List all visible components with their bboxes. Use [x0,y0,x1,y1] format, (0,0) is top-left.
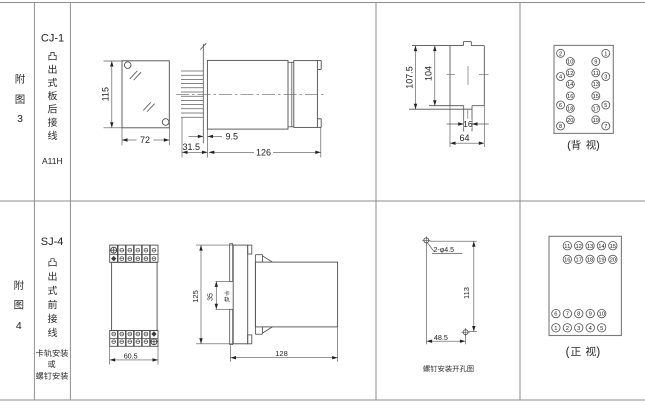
svg-text:2: 2 [559,51,562,57]
svg-text:7: 7 [604,124,607,130]
svg-text:SJ-4: SJ-4 [41,236,64,248]
svg-text:35: 35 [208,293,215,301]
svg-text:9: 9 [594,60,597,66]
svg-text:7: 7 [566,312,569,318]
svg-text:17: 17 [575,258,581,264]
svg-text:14: 14 [567,82,573,88]
svg-text:14: 14 [598,244,605,250]
svg-text:113: 113 [462,287,471,299]
svg-text:20: 20 [610,258,616,264]
svg-text:10: 10 [567,60,573,66]
svg-text:3: 3 [604,75,607,81]
svg-text:18: 18 [587,258,593,264]
svg-text:(: ( [566,346,570,358]
svg-text:): ) [596,140,600,152]
svg-text:12: 12 [575,244,581,250]
svg-text:12: 12 [567,71,573,77]
svg-text:A11H: A11H [42,156,63,166]
svg-text:17: 17 [593,106,599,112]
svg-text:16: 16 [463,119,473,129]
svg-text:126: 126 [256,147,271,157]
svg-text:8: 8 [577,312,580,318]
svg-text:6: 6 [559,103,562,109]
svg-text:15: 15 [593,94,599,100]
svg-text:107.5: 107.5 [404,66,414,89]
svg-text:15: 15 [610,244,616,250]
svg-text:5: 5 [604,103,607,109]
svg-text:16: 16 [564,258,570,264]
svg-text:48.5: 48.5 [434,333,448,342]
svg-text:13: 13 [593,82,599,88]
svg-text:19: 19 [593,118,599,124]
svg-text:2-φ4.5: 2-φ4.5 [434,247,455,254]
svg-text:20: 20 [567,118,573,124]
svg-text:128: 128 [275,349,288,358]
svg-text:13: 13 [587,244,593,250]
svg-text:11: 11 [593,71,599,77]
svg-text:31.5: 31.5 [183,142,201,152]
svg-text:9: 9 [589,312,592,318]
svg-text:9.5: 9.5 [226,132,239,142]
svg-text:(: ( [567,140,571,152]
svg-text:): ) [596,346,600,358]
svg-text:64: 64 [459,133,469,143]
svg-text:10: 10 [598,312,604,318]
svg-text:5: 5 [600,326,603,332]
svg-text:72: 72 [140,135,150,145]
svg-text:115: 115 [101,87,111,101]
svg-text:60.5: 60.5 [124,351,138,360]
svg-text:2: 2 [566,326,569,332]
svg-text:19: 19 [598,258,604,264]
svg-text:11: 11 [564,244,570,250]
svg-text:4: 4 [559,75,562,81]
svg-text:104: 104 [424,66,434,81]
svg-text:3: 3 [17,113,23,125]
svg-text:6: 6 [554,312,557,318]
svg-text:125: 125 [191,290,200,303]
svg-text:8: 8 [559,124,562,130]
svg-text:CJ-1: CJ-1 [41,33,64,45]
svg-text:3: 3 [577,326,580,332]
svg-text:1: 1 [604,51,607,57]
svg-text:1: 1 [554,326,557,332]
svg-text:4: 4 [16,320,22,332]
svg-text:18: 18 [567,106,573,112]
svg-text:16: 16 [567,94,573,100]
